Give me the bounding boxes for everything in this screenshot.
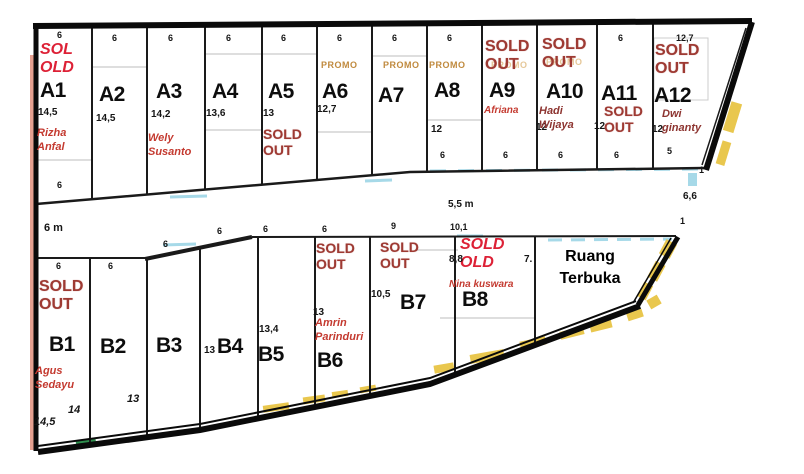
plot-b2-top-dim: 6: [108, 261, 113, 271]
plot-a3-top-dim: 6: [168, 33, 173, 43]
plot-a3-label: A3: [156, 80, 182, 104]
plot-a7-top-dim: 6: [392, 33, 397, 43]
plot-b1-top-dim: 6: [56, 261, 61, 271]
plot-a9-label: A9: [489, 79, 515, 103]
plot-a7-label: A7: [378, 84, 404, 108]
plot-a10-bottom-dim: 6: [558, 150, 563, 160]
plot-a1-dim: 14,5: [38, 107, 57, 118]
plot-a11-dim: 12: [594, 121, 605, 132]
plot-a10-status: SOLD OUT: [542, 36, 598, 72]
plot-a9-status: SOLD OUT: [485, 38, 541, 74]
open-space-label: Ruang Terbuka: [548, 246, 632, 289]
plot-b6-top-dim: 6: [322, 224, 327, 234]
plot-b8-label: B8: [462, 288, 488, 312]
plot-a1-top-dim: 6: [57, 30, 62, 40]
plot-b3-dim: 13: [127, 393, 139, 405]
plot-b7-dim: 10,5: [371, 289, 390, 300]
plot-a1-name: Rizha Anfal: [37, 126, 91, 155]
plot-b8-dim: 8,8: [449, 254, 463, 265]
plot-a11-status: SOLD OUT: [604, 104, 654, 136]
plot-a12-name: Dwi ginanty: [662, 107, 716, 136]
plot-a5-label: A5: [268, 80, 294, 104]
plot-b6-label: B6: [317, 349, 343, 373]
plot-b8-top-dim: 10,1: [450, 222, 468, 232]
plot-a12-label: A12: [654, 84, 691, 108]
water-dash-marks: [163, 169, 700, 245]
plot-b8-name: Nina kuswara: [449, 278, 513, 291]
plot-a6-top-dim: 6: [337, 33, 342, 43]
plot-b5-top-dim: 6: [263, 224, 268, 234]
plot-a12-bottom-dim: 5: [667, 146, 672, 156]
plot-a8-promo-badge: PROMO: [429, 60, 466, 70]
plot-a5-top-dim: 6: [281, 33, 286, 43]
plot-a10-name: Hadi Wijaya: [539, 104, 593, 133]
plot-a8-dim: 12: [431, 124, 442, 135]
plot-b7-label: B7: [400, 291, 426, 315]
plot-b3-label: B3: [156, 334, 182, 358]
plot-a5-status: SOLD OUT: [263, 127, 313, 159]
plot-a2-dim: 14,5: [96, 113, 115, 124]
plot-b4-top-dim: 6: [217, 226, 222, 236]
plot-b1-label: B1: [49, 333, 75, 357]
plot-a3-name: Wely Susanto: [148, 131, 202, 160]
plot-b6-status: SOLD OUT: [316, 241, 366, 273]
plot-a8-bottom-dim: 6: [440, 150, 445, 160]
edge-dim-right-mid: 6,6: [683, 191, 697, 202]
plot-a2-top-dim: 6: [112, 33, 117, 43]
plot-a6-label: A6: [322, 80, 348, 104]
road-north-edge: [36, 168, 704, 204]
plot-a11-label: A11: [601, 82, 637, 106]
plot-b5-label: B5: [258, 343, 284, 367]
road-width-left-label: 6 m: [44, 222, 63, 234]
plot-a2-label: A2: [99, 83, 125, 107]
plot-b1-name: Agus Sedayu: [35, 364, 89, 393]
plot-a7-promo-badge: PROMO: [383, 60, 420, 70]
plot-a9-bottom-dim: 6: [503, 150, 508, 160]
plot-a1-status: SOL OLD: [40, 41, 92, 77]
edge-dim-right-bottom: 1: [680, 216, 685, 226]
plot-a6-promo-badge: PROMO: [321, 60, 358, 70]
plot-a12-status: SOLD OUT: [655, 42, 711, 78]
plot-b2-label: B2: [100, 335, 126, 359]
plot-b6-name: Amrin Parinduri: [315, 316, 369, 345]
plot-a6-dim: 12,7: [317, 104, 336, 115]
plot-a10-label: A10: [546, 80, 583, 104]
plot-b1-dim: 14,5: [34, 416, 55, 428]
plot-a5-dim: 13: [263, 108, 274, 119]
plot-b7-top-dim: 9: [391, 221, 396, 231]
plot-b1-status: SOLD OUT: [39, 278, 95, 314]
plot-b5-dim: 13,4: [259, 324, 278, 335]
plot-a11-top-dim: 6: [618, 33, 623, 43]
plot-a4-dim: 13,6: [206, 108, 225, 119]
plot-a4-label: A4: [212, 80, 238, 104]
road-width-right-label: 5,5 m: [448, 199, 474, 210]
plot-b7-status: SOLD OUT: [380, 240, 430, 272]
plot-a8-top-dim: 6: [447, 33, 452, 43]
plot-b8-status: SOLD OLD: [460, 236, 512, 272]
plot-b8-side-dim: 7.: [524, 254, 532, 265]
plot-b4-label: B4: [217, 335, 243, 359]
plot-b4-dim: 13: [204, 345, 215, 356]
plot-a4-top-dim: 6: [226, 33, 231, 43]
plot-a1-bottom-dim: 6: [57, 180, 62, 190]
plot-a11-bottom-dim: 6: [614, 150, 619, 160]
siteplan-canvas: 6 m 5,5 m Ruang Terbuka 1 6,6 1 6SOL OLD…: [0, 0, 804, 474]
edge-dim-right-top: 1: [699, 165, 704, 175]
plot-b3-top-dim: 6: [163, 239, 168, 249]
plot-a8-label: A8: [434, 79, 460, 103]
plot-b2-dim: 14: [68, 404, 80, 416]
plot-a9-name: Afriana: [484, 104, 518, 117]
plot-a1-label: A1: [40, 79, 66, 103]
plot-a3-dim: 14,2: [151, 109, 170, 120]
